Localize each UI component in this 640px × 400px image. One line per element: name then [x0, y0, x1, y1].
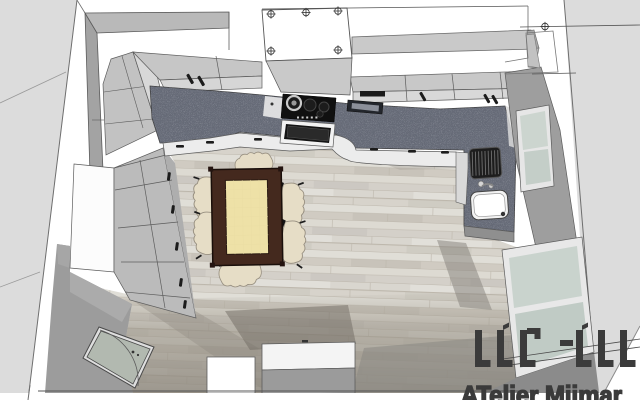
svg-text:ATelier Miimar: ATelier Miimar	[461, 380, 622, 400]
